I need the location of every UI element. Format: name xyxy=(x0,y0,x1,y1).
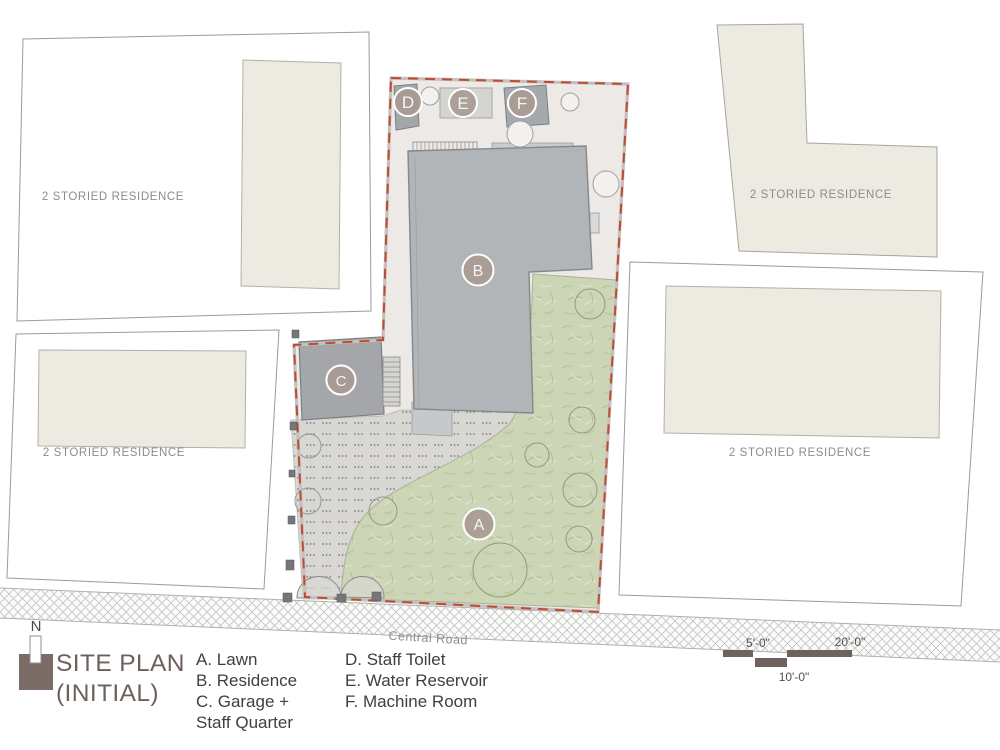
plot-bottom-right: 2 STORIED RESIDENCE xyxy=(619,262,983,606)
wall-post xyxy=(289,470,295,477)
zone-label-a: A xyxy=(464,509,495,540)
wall-post xyxy=(290,422,297,430)
scale-label-20: 20'-0" xyxy=(835,635,866,649)
scale-label-5: 5'-0" xyxy=(746,636,770,650)
tree xyxy=(561,93,579,111)
legend-item-f: F. Machine Room xyxy=(345,692,477,711)
legend-item-a: A. Lawn xyxy=(196,650,257,669)
site-plan-drawing: 2 STORIED RESIDENCE 2 STORIED RESIDENCE … xyxy=(0,0,1000,750)
wall-post xyxy=(288,516,295,524)
zone-label-c: C xyxy=(327,366,356,395)
building-footprint xyxy=(241,60,341,289)
tree xyxy=(593,171,619,197)
title-line-1: SITE PLAN xyxy=(56,650,185,677)
zone-label-e: E xyxy=(449,89,477,117)
gate-post xyxy=(286,560,294,570)
neighbor-label: 2 STORIED RESIDENCE xyxy=(750,189,892,201)
gate-post xyxy=(283,593,292,602)
title-line-2: (INITIAL) xyxy=(56,680,159,707)
neighbor-label: 2 STORIED RESIDENCE xyxy=(43,447,185,459)
legend-item-c: C. Garage + xyxy=(196,692,289,711)
gate-post xyxy=(372,592,381,601)
legend-item-c2: Staff Quarter xyxy=(196,713,293,732)
plot-top-right: 2 STORIED RESIDENCE xyxy=(717,24,937,257)
neighbor-label: 2 STORIED RESIDENCE xyxy=(42,191,184,203)
legend-item-d: D. Staff Toilet xyxy=(345,650,446,669)
scale-segment-5 xyxy=(723,650,753,657)
zone-label-d: D xyxy=(394,88,422,116)
legend-item-e: E. Water Reservoir xyxy=(345,671,488,690)
svg-text:A: A xyxy=(474,517,485,534)
legend: A. Lawn B. Residence C. Garage + Staff Q… xyxy=(196,650,488,732)
scale-label-10: 10'-0" xyxy=(779,670,810,684)
svg-text:E: E xyxy=(457,94,468,113)
north-arrow: N xyxy=(19,618,53,690)
site-plan-page: 2 STORIED RESIDENCE 2 STORIED RESIDENCE … xyxy=(0,0,1000,750)
scale-segment-10 xyxy=(755,658,787,667)
tree xyxy=(421,87,439,105)
plot-bottom-left: 2 STORIED RESIDENCE xyxy=(7,330,279,589)
wall-post xyxy=(292,330,299,338)
garage-stairs xyxy=(383,357,400,406)
residence-side-unit xyxy=(590,213,599,233)
zone-label-b: B xyxy=(463,255,494,286)
legend-item-b: B. Residence xyxy=(196,671,297,690)
zone-label-f: F xyxy=(508,89,536,117)
neighbor-label: 2 STORIED RESIDENCE xyxy=(729,447,871,459)
north-needle xyxy=(30,636,41,663)
tree xyxy=(507,121,533,147)
svg-text:C: C xyxy=(336,373,347,390)
north-letter: N xyxy=(31,618,42,635)
scale-segment-20 xyxy=(787,650,852,657)
gate-post xyxy=(337,594,346,602)
building-footprint xyxy=(717,24,937,257)
svg-text:F: F xyxy=(517,94,527,113)
drawing-title: SITE PLAN (INITIAL) xyxy=(56,650,185,707)
plot-top-left: 2 STORIED RESIDENCE xyxy=(17,32,371,321)
building-footprint xyxy=(664,286,941,438)
building-footprint xyxy=(38,350,246,448)
svg-text:D: D xyxy=(402,93,414,112)
svg-text:B: B xyxy=(473,263,484,280)
